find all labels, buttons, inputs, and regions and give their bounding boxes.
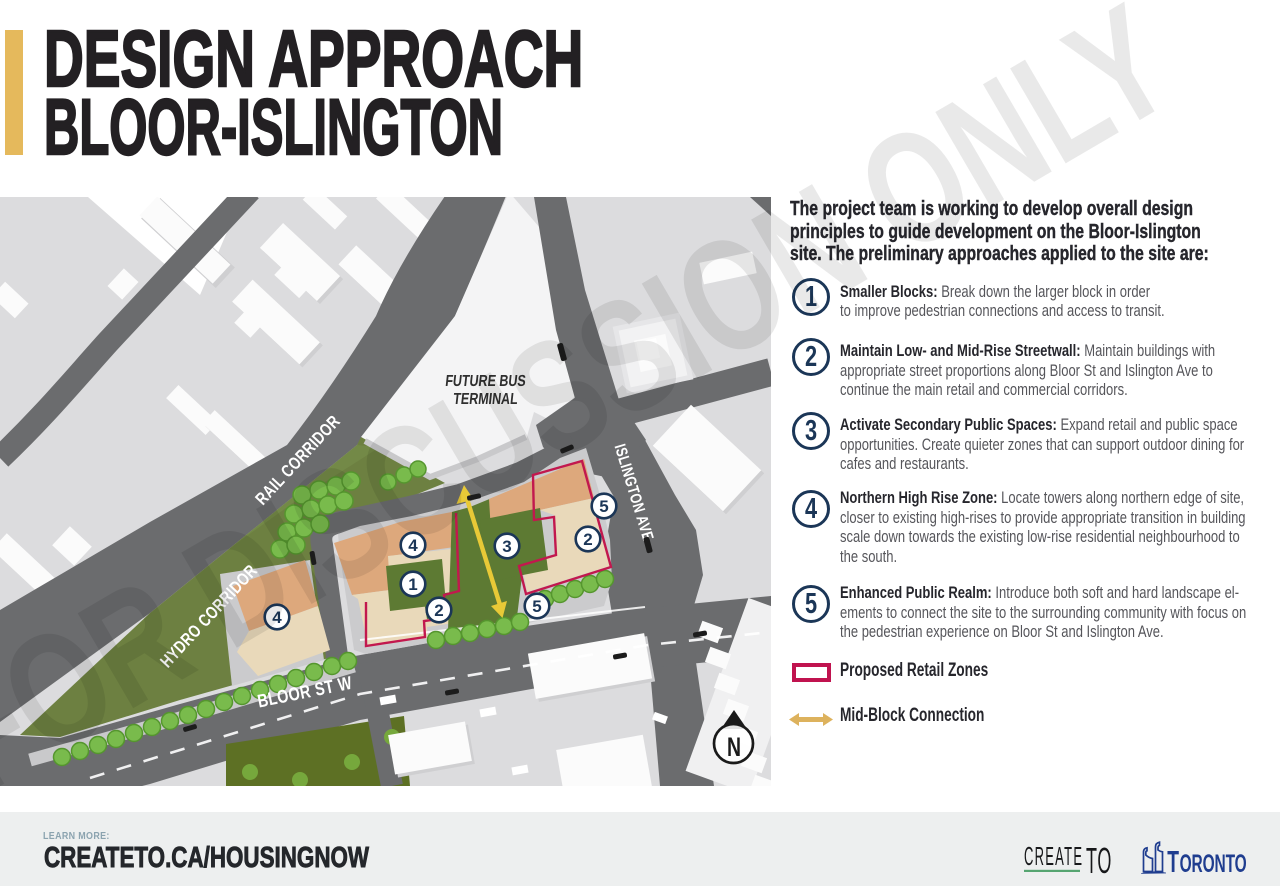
svg-text:N: N [727, 732, 741, 762]
svg-text:2: 2 [434, 601, 443, 620]
svg-text:CREATE: CREATE [1024, 842, 1083, 871]
svg-text:1: 1 [408, 575, 417, 594]
svg-text:FUTURE BUS: FUTURE BUS [444, 373, 527, 391]
svg-text:TO: TO [1086, 841, 1112, 880]
svg-text:3: 3 [502, 537, 511, 556]
svg-text:4: 4 [272, 608, 282, 627]
svg-text:2: 2 [583, 530, 592, 549]
svg-text:ORONTO: ORONTO [1180, 850, 1247, 878]
svg-text:5: 5 [532, 597, 541, 616]
svg-text:TERMINAL: TERMINAL [452, 391, 519, 409]
svg-text:T: T [1167, 846, 1179, 880]
svg-text:5: 5 [599, 497, 608, 516]
svg-text:4: 4 [408, 536, 418, 555]
